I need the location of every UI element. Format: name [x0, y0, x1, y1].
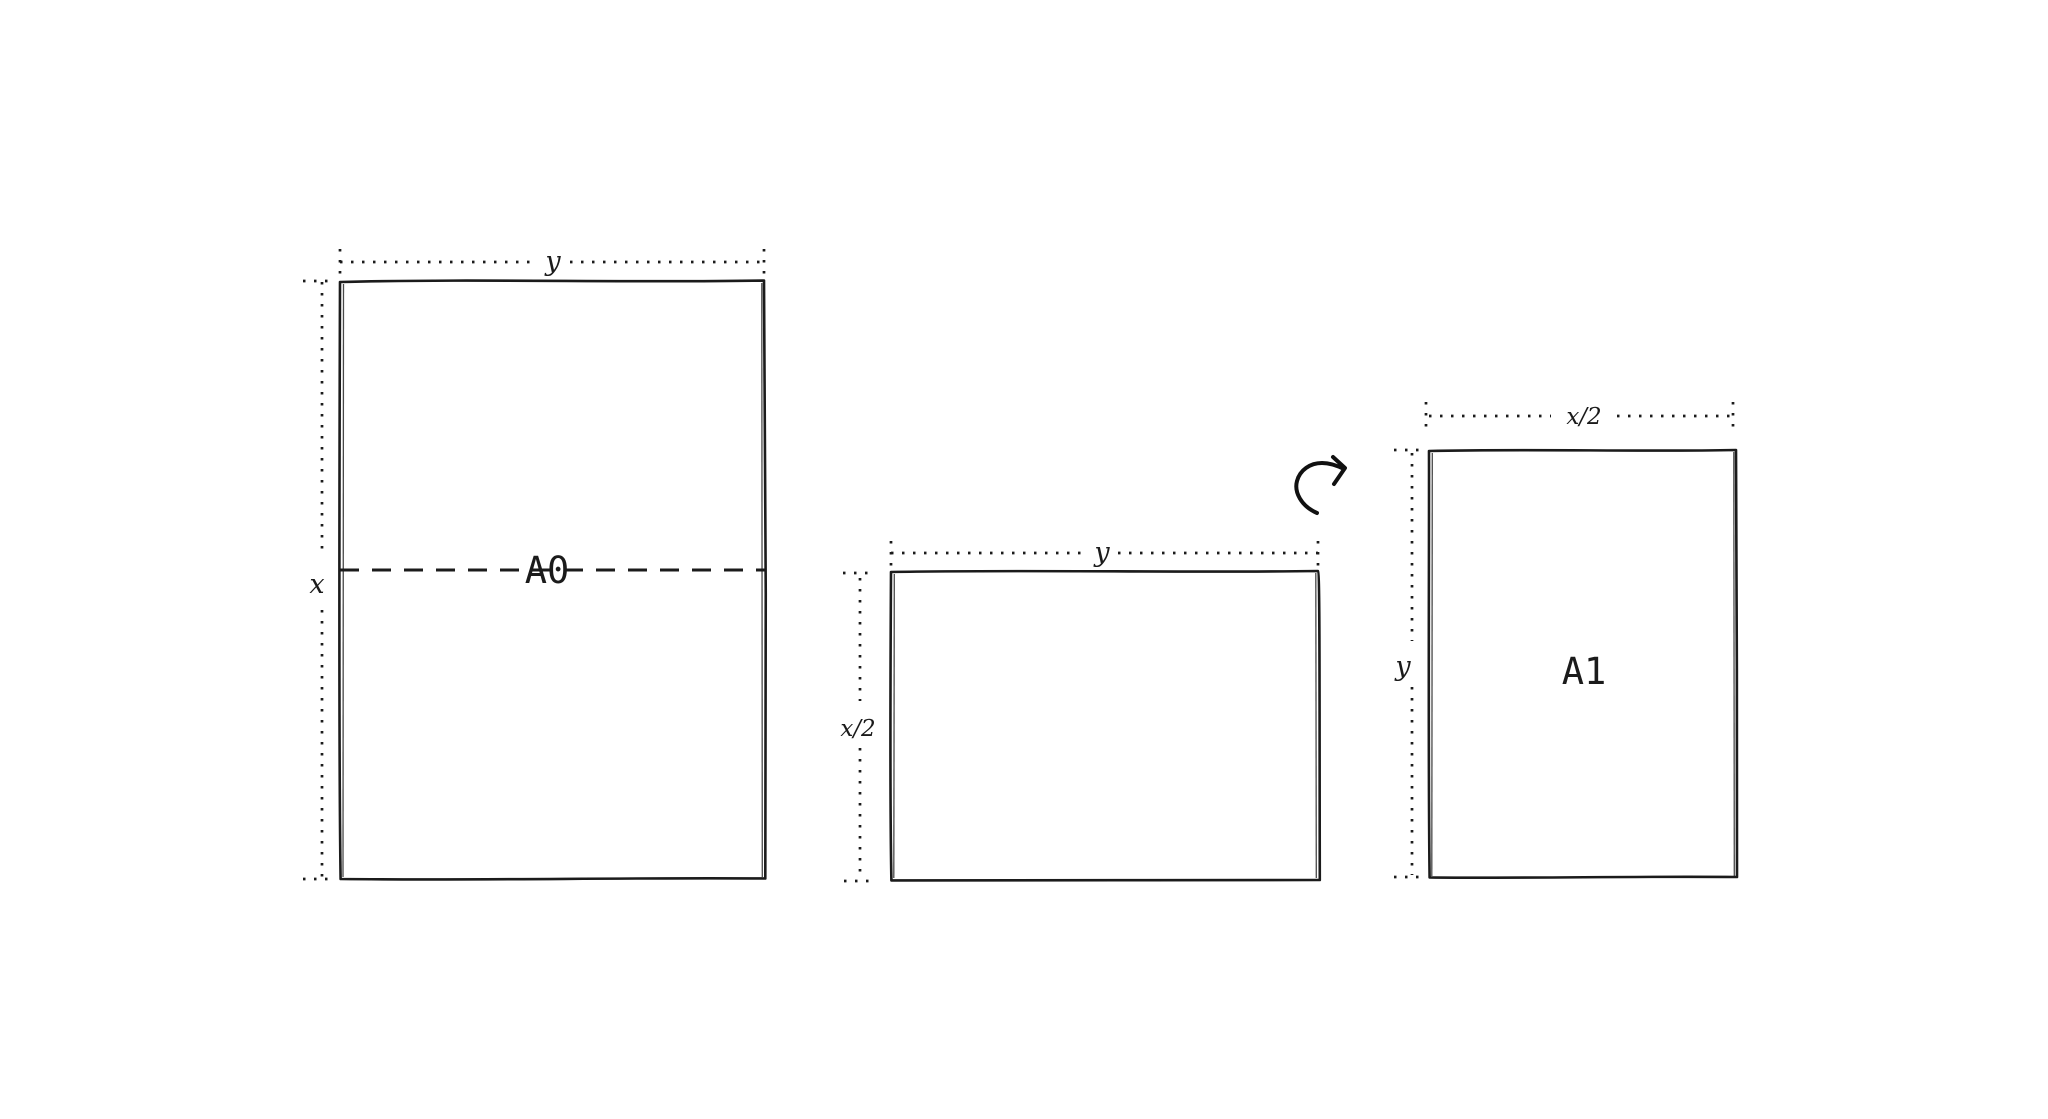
- a1-portrait-edge-echo-right: [1734, 452, 1735, 876]
- a0-edge-echo-right: [762, 283, 763, 877]
- a1-portrait-height-dimension: y: [1394, 450, 1426, 877]
- a0-width-dim-label: y: [544, 246, 561, 277]
- a1-landscape-width-dim-label: y: [1093, 537, 1110, 568]
- a1-landscape-height-dim-label: x/2: [840, 716, 875, 742]
- a1-landscape-edge-echo-left: [894, 574, 895, 878]
- a1-landscape-edge-echo-right: [1316, 573, 1317, 878]
- a1-portrait-sheet: A1 x/2 y: [1394, 402, 1737, 878]
- a0-width-dimension: y: [340, 246, 764, 277]
- a1-landscape-width-dimension: y: [891, 537, 1318, 568]
- whiteboard-canvas: A0 y x: [0, 0, 2048, 1119]
- a1-landscape-outline: [890, 571, 1319, 881]
- rotate-arrow-head: [1333, 457, 1345, 484]
- a0-sheet: A0 y x: [303, 246, 766, 879]
- a0-height-dim-label: x: [309, 569, 324, 600]
- a1-landscape-sheet: y x/2: [840, 537, 1319, 881]
- a0-height-dimension: x: [303, 281, 335, 879]
- a0-edge-echo-left: [343, 284, 344, 877]
- rotate-arrow-icon: [1296, 457, 1345, 513]
- a1-portrait-edge-echo-left: [1432, 453, 1433, 876]
- a1-portrait-width-dim-label: x/2: [1566, 404, 1601, 430]
- a1-portrait-width-dimension: x/2: [1426, 402, 1733, 431]
- a1-landscape-height-dimension: x/2: [840, 573, 875, 881]
- a0-label: A0: [525, 549, 570, 592]
- paper-sizes-diagram: A0 y x: [0, 0, 2048, 1119]
- rotate-arrow-curve: [1296, 463, 1344, 513]
- a1-label: A1: [1562, 650, 1607, 693]
- a1-portrait-height-dim-label: y: [1394, 651, 1411, 682]
